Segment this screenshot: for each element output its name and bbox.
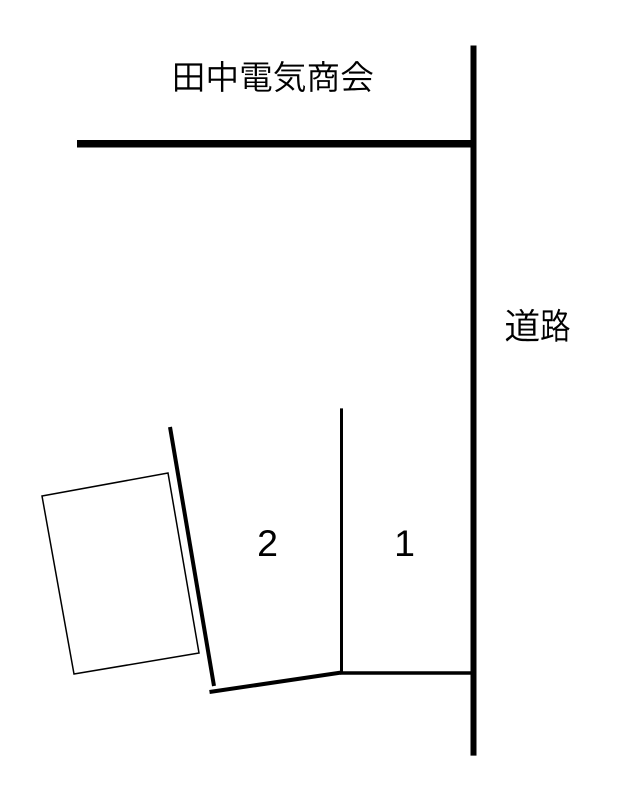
svg-text:2: 2 bbox=[257, 522, 278, 564]
svg-text:1: 1 bbox=[394, 522, 415, 564]
